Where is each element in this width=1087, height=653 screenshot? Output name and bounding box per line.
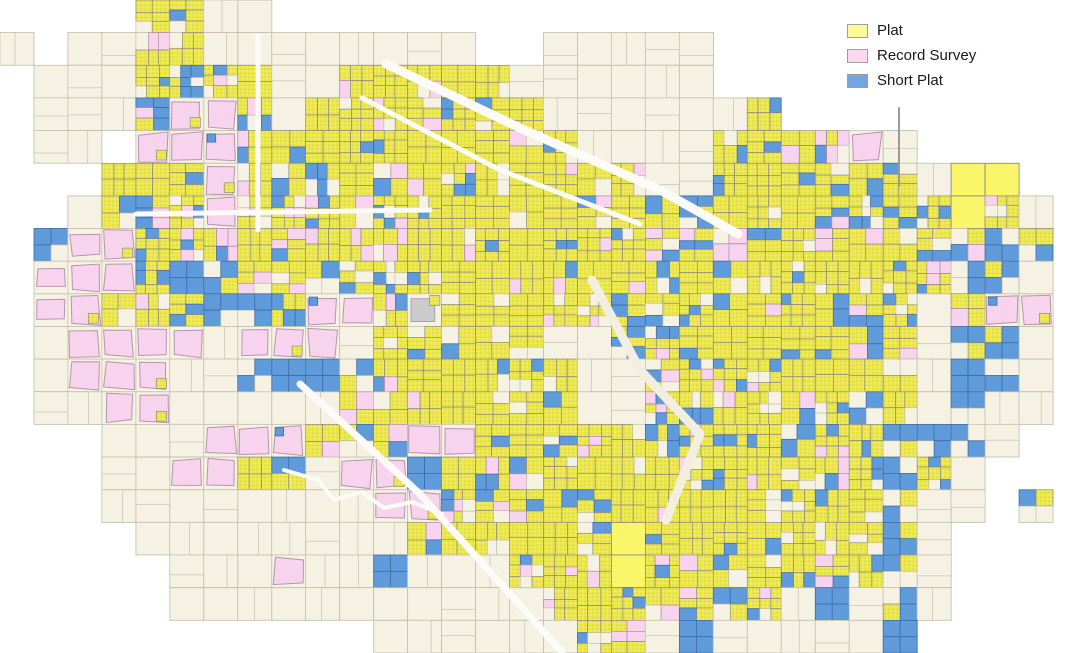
parcel (802, 315, 815, 327)
parcel (837, 392, 849, 403)
parcel (499, 474, 510, 490)
parcel (849, 392, 866, 408)
parcel (228, 229, 238, 247)
parcel (160, 65, 170, 77)
parcel (238, 229, 251, 245)
parcel (453, 392, 463, 407)
parcel (306, 261, 322, 278)
parcel (566, 555, 578, 567)
parcel (737, 522, 747, 532)
parcel (794, 555, 804, 573)
parcel (679, 241, 694, 250)
parcel (747, 98, 758, 113)
parcel (670, 339, 680, 349)
parcel (713, 196, 729, 213)
legend-label-short-plat: Short Plat (877, 73, 943, 88)
map-view[interactable]: Plat Record Survey Short Plat (0, 0, 1087, 653)
parcel (239, 427, 269, 455)
parcel (815, 251, 832, 261)
parcel (899, 174, 918, 183)
parcel (866, 294, 883, 305)
parcel (463, 392, 476, 407)
parcel (645, 578, 655, 588)
parcel (204, 555, 227, 588)
parcel (645, 544, 661, 555)
parcel (578, 620, 588, 632)
parcel (799, 457, 815, 469)
parcel (645, 250, 662, 261)
parcel (596, 217, 611, 229)
parcel (578, 424, 590, 436)
parcel (998, 196, 1007, 205)
parcel (567, 478, 578, 490)
parcel (254, 261, 272, 272)
parcel (526, 445, 543, 457)
parcel (295, 294, 306, 310)
parcel (578, 643, 588, 653)
parcel (896, 408, 905, 425)
parcel (622, 474, 634, 490)
parcel (288, 229, 306, 240)
parcel (691, 507, 702, 522)
parcel (396, 294, 408, 311)
parcel (578, 217, 597, 229)
parcel (288, 240, 306, 249)
parcel (136, 424, 170, 457)
parcel (894, 283, 907, 294)
parcel (510, 212, 527, 229)
parcel (442, 457, 459, 474)
parcel (872, 457, 883, 469)
parcel (527, 457, 544, 474)
parcel (34, 392, 68, 412)
parcel (593, 261, 611, 279)
parcel (459, 294, 475, 305)
parcel (899, 163, 918, 174)
parcel (968, 261, 985, 277)
parcel (611, 555, 645, 588)
parcel (815, 239, 832, 252)
parcel (34, 359, 68, 392)
parcel (476, 457, 487, 474)
parcel (157, 285, 170, 294)
parcel (510, 146, 527, 163)
parcel (442, 245, 453, 261)
parcel (781, 480, 799, 489)
parcel (578, 571, 588, 587)
parcel (747, 327, 763, 338)
parcel (306, 115, 318, 131)
parcel (747, 186, 757, 196)
parcel (747, 555, 766, 567)
parcel (357, 392, 374, 410)
parcel (398, 229, 408, 245)
parcel (758, 196, 768, 207)
parcel (272, 294, 284, 310)
parcel (578, 500, 595, 513)
parcel (136, 249, 146, 261)
parcel (1007, 217, 1019, 229)
parcel (781, 588, 798, 621)
parcel (692, 392, 700, 408)
parcel (238, 359, 255, 375)
parcel (611, 474, 622, 490)
parcel (136, 65, 147, 77)
parcel (623, 424, 633, 439)
parcel (803, 241, 815, 252)
parcel (600, 571, 612, 587)
parcel (170, 0, 186, 10)
parcel (760, 588, 771, 599)
parcel (698, 555, 714, 571)
parcel (723, 408, 735, 425)
parcel (747, 448, 757, 458)
parcel (340, 131, 351, 142)
parcel (532, 371, 544, 379)
parcel (544, 588, 555, 600)
parcel (356, 186, 374, 196)
parcel (238, 522, 259, 555)
parcel (476, 404, 493, 415)
parcel (766, 316, 782, 327)
parcel (487, 540, 496, 555)
parcel (713, 620, 747, 637)
parcel (555, 567, 566, 576)
parcel (883, 588, 900, 604)
legend-label-record-survey: Record Survey (877, 48, 976, 63)
parcel (520, 576, 532, 587)
parcel (306, 424, 323, 441)
parcel (831, 350, 849, 359)
parcel (204, 522, 238, 555)
parcel (737, 457, 747, 469)
parcel (645, 229, 662, 239)
parcel (713, 184, 724, 196)
parcel (340, 555, 359, 588)
parcel (544, 576, 555, 588)
parcel (805, 490, 816, 502)
parcel (724, 435, 737, 446)
parcel (476, 436, 492, 447)
parcel (522, 110, 533, 121)
parcel (781, 424, 797, 439)
parcel (104, 264, 135, 291)
parcel (849, 344, 867, 359)
parcel (374, 76, 386, 86)
parcel (907, 315, 917, 327)
parcel (663, 229, 680, 239)
parcel (429, 285, 442, 294)
parcel (408, 337, 425, 349)
parcel (567, 229, 578, 241)
parcel (799, 469, 815, 481)
parcel (527, 294, 543, 306)
parcel (883, 244, 900, 261)
parcel (985, 205, 998, 217)
parcel (283, 294, 295, 310)
parcel (340, 98, 352, 109)
parcel (747, 578, 766, 588)
parcel (544, 457, 555, 467)
parcel (805, 511, 816, 522)
parcel (917, 441, 934, 457)
parcel (951, 327, 968, 343)
parcel (815, 336, 831, 349)
parcel (737, 478, 747, 490)
parcel (696, 637, 713, 653)
parcel (804, 573, 816, 588)
parcel (386, 76, 395, 86)
parcel (998, 217, 1007, 229)
parcel (284, 196, 294, 208)
parcel (487, 180, 497, 196)
parcel (384, 140, 395, 154)
parcel (494, 141, 510, 153)
parcel (827, 413, 837, 424)
parcel (800, 339, 815, 350)
parcel (204, 86, 214, 98)
parcel (1002, 245, 1019, 261)
parcel (181, 78, 191, 87)
parcel (940, 285, 951, 294)
parcel (865, 359, 883, 375)
parcel (815, 163, 831, 175)
parcel (1036, 506, 1053, 522)
parcel (152, 0, 170, 12)
parcel (191, 87, 204, 99)
parcel (561, 219, 577, 229)
parcel (828, 506, 838, 522)
parcel (136, 108, 154, 119)
parcel (242, 330, 268, 356)
parcel (747, 219, 758, 229)
parcel (815, 327, 831, 337)
parcel (951, 343, 968, 359)
parcel (832, 208, 849, 217)
parcel (351, 65, 363, 80)
parcel (408, 261, 420, 272)
parcel (766, 567, 781, 577)
parcel (340, 392, 357, 410)
parcel (713, 478, 724, 490)
parcel (815, 555, 833, 567)
parcel (533, 98, 543, 110)
parcel (170, 555, 204, 575)
parcel (781, 350, 800, 359)
parcel (951, 376, 968, 392)
parcel (700, 408, 713, 424)
parcel (454, 490, 463, 500)
parcel (72, 264, 100, 292)
parcel (747, 567, 766, 577)
parcel (459, 305, 475, 316)
parcel (645, 65, 666, 98)
parcel (883, 315, 896, 327)
parcel (160, 77, 170, 86)
parcel (917, 238, 932, 250)
parcel (697, 599, 714, 608)
parcel (713, 369, 724, 380)
parcel (815, 272, 826, 285)
parcel (713, 131, 724, 146)
parcel (289, 284, 305, 294)
parcel (485, 252, 498, 262)
parcel (384, 154, 395, 164)
parcel (645, 261, 657, 278)
parcel (136, 179, 153, 196)
parcel (294, 196, 306, 208)
parcel (565, 315, 578, 327)
parcel (556, 229, 567, 241)
parcel (194, 240, 204, 250)
parcel (865, 499, 883, 512)
parcel (544, 278, 554, 294)
parcel (731, 261, 748, 277)
parcel (838, 284, 849, 294)
parcel (272, 310, 284, 327)
parcel (781, 392, 800, 409)
parcel (554, 315, 565, 327)
parcel (730, 294, 748, 310)
parcel (442, 205, 452, 218)
parcel (611, 608, 623, 620)
parcel (306, 153, 323, 163)
parcel (374, 410, 391, 425)
parcel (713, 604, 730, 620)
parcel (662, 535, 680, 544)
parcel (689, 306, 700, 315)
parcel (917, 359, 932, 392)
parcel (340, 327, 374, 346)
parcel (968, 424, 985, 440)
parcel (555, 457, 568, 467)
parcel (544, 567, 555, 576)
parcel (866, 316, 883, 327)
parcel (900, 441, 917, 457)
parcel (476, 374, 489, 392)
parcel (497, 540, 510, 555)
parcel (587, 555, 599, 571)
parcel (147, 86, 160, 98)
parcel (695, 229, 714, 241)
parcel (611, 281, 629, 293)
parcel (900, 376, 917, 392)
parcel (284, 218, 294, 229)
parcel (781, 283, 792, 294)
parcel (306, 163, 318, 179)
parcel (611, 261, 629, 273)
parcel (815, 131, 826, 146)
parcel (815, 175, 831, 184)
parcel (408, 409, 420, 425)
parcel (622, 457, 634, 474)
parcel (793, 241, 803, 252)
parcel (221, 261, 238, 277)
parcel (156, 411, 166, 421)
parcel (290, 131, 306, 147)
parcel (883, 283, 893, 294)
parcel (476, 180, 488, 196)
parcel (454, 511, 463, 522)
parcel (611, 98, 645, 131)
parcel (420, 261, 429, 272)
parcel (327, 163, 339, 179)
parcel (389, 442, 408, 457)
parcel (408, 327, 425, 338)
parcel (883, 506, 900, 522)
parcel (815, 229, 832, 239)
parcel (656, 339, 669, 349)
parcel (600, 238, 612, 251)
parcel (34, 98, 68, 116)
parcel (136, 457, 170, 490)
parcel (726, 490, 737, 507)
parcel (932, 238, 951, 250)
parcel (306, 244, 319, 261)
parcel (645, 303, 663, 315)
parcel (408, 457, 425, 473)
parcel (871, 217, 884, 229)
parcel (697, 273, 713, 284)
parcel (968, 376, 985, 392)
parcel (395, 131, 408, 140)
parcel (800, 350, 815, 359)
parcel (627, 642, 645, 653)
parcel (306, 141, 323, 153)
parcel (206, 426, 237, 453)
map-canvas[interactable] (0, 0, 1087, 653)
parcel (611, 505, 621, 522)
parcel (146, 239, 159, 249)
parcel (318, 229, 328, 245)
parcel (510, 65, 544, 81)
parcel (679, 336, 697, 348)
parcel (698, 336, 714, 348)
parcel (827, 424, 839, 436)
parcel (766, 555, 781, 567)
parcel (679, 588, 696, 599)
parcel (153, 218, 170, 229)
parcel (917, 274, 927, 285)
parcel (793, 229, 803, 241)
parcel (917, 522, 951, 539)
parcel (442, 490, 455, 500)
parcel (238, 163, 250, 181)
parcel (408, 219, 419, 229)
parcel (849, 229, 866, 245)
parcel (578, 251, 588, 261)
parcel (867, 179, 883, 196)
parcel (159, 249, 170, 261)
parcel (385, 377, 398, 392)
parcel (208, 101, 236, 129)
parcel (408, 33, 442, 52)
parcel (527, 245, 543, 261)
parcel (408, 108, 424, 118)
parcel (104, 362, 135, 390)
parcel (747, 277, 760, 294)
parcel (724, 380, 736, 392)
parcel (544, 208, 562, 219)
parcel (238, 115, 248, 130)
parcel (262, 474, 272, 490)
legend-swatch-record-survey (847, 49, 868, 63)
parcel (803, 252, 815, 262)
parcel (713, 533, 724, 544)
parcel (737, 543, 747, 555)
parcel (340, 186, 356, 196)
parcel (323, 442, 340, 457)
